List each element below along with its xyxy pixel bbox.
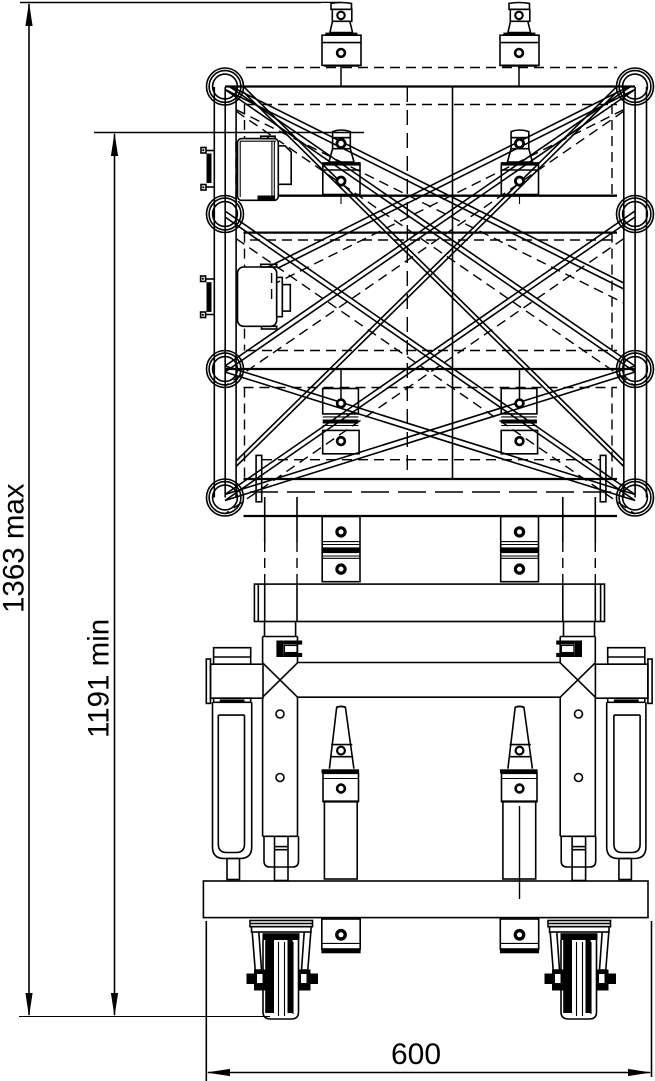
svg-text:1363 max: 1363 max (0, 483, 31, 613)
svg-text:1191 min: 1191 min (83, 619, 116, 738)
svg-text:600: 600 (391, 1038, 441, 1071)
